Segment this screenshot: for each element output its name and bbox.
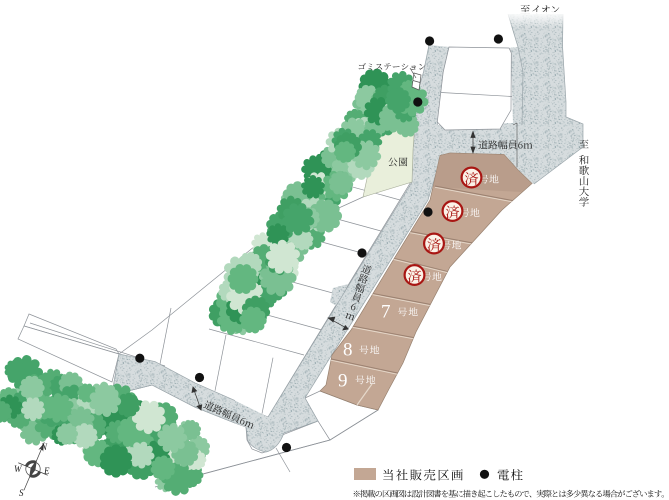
svg-text:N: N xyxy=(40,442,48,452)
svg-text:8: 8 xyxy=(343,340,353,361)
svg-text:9: 9 xyxy=(338,371,348,392)
svg-text:E: E xyxy=(43,466,50,476)
svg-text:7: 7 xyxy=(381,302,391,323)
svg-text:S: S xyxy=(19,488,24,498)
svg-text:W: W xyxy=(14,464,23,474)
